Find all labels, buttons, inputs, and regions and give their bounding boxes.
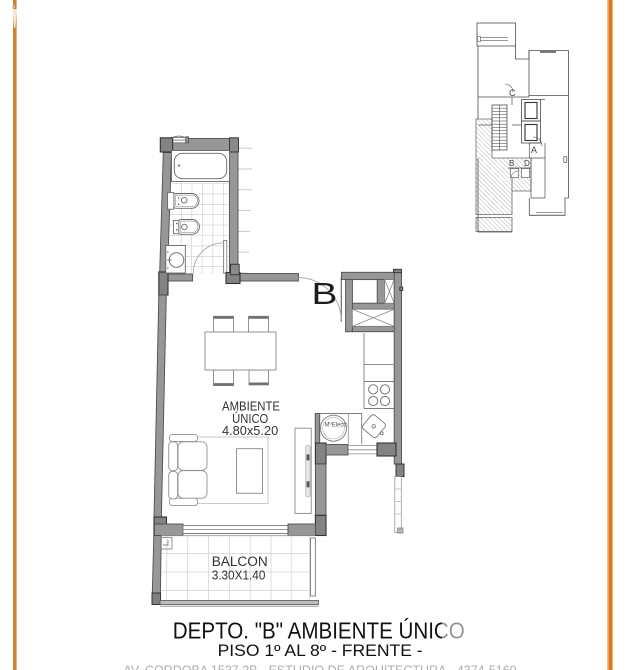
svg-text:A: A: [531, 145, 537, 155]
svg-text:4.80x5.20: 4.80x5.20: [222, 424, 278, 438]
svg-text:B: B: [312, 277, 338, 311]
svg-text:B: B: [509, 159, 514, 168]
svg-text:MºElectr.: MºElectr.: [325, 422, 349, 429]
svg-text:C: C: [509, 88, 516, 98]
svg-text:3.30X1.40: 3.30X1.40: [212, 569, 266, 583]
svg-text:D: D: [524, 159, 530, 168]
svg-text:AV. CORDOBA 1537 2B - ESTUDIO: AV. CORDOBA 1537 2B - ESTUDIO DE ARQUITE…: [123, 663, 516, 670]
svg-text:PISO 1º AL 8º - FRENTE -: PISO 1º AL 8º - FRENTE -: [218, 642, 423, 660]
svg-text:DEPTO. "B" AMBIENTE ÚNICO: DEPTO. "B" AMBIENTE ÚNICO: [173, 618, 465, 644]
